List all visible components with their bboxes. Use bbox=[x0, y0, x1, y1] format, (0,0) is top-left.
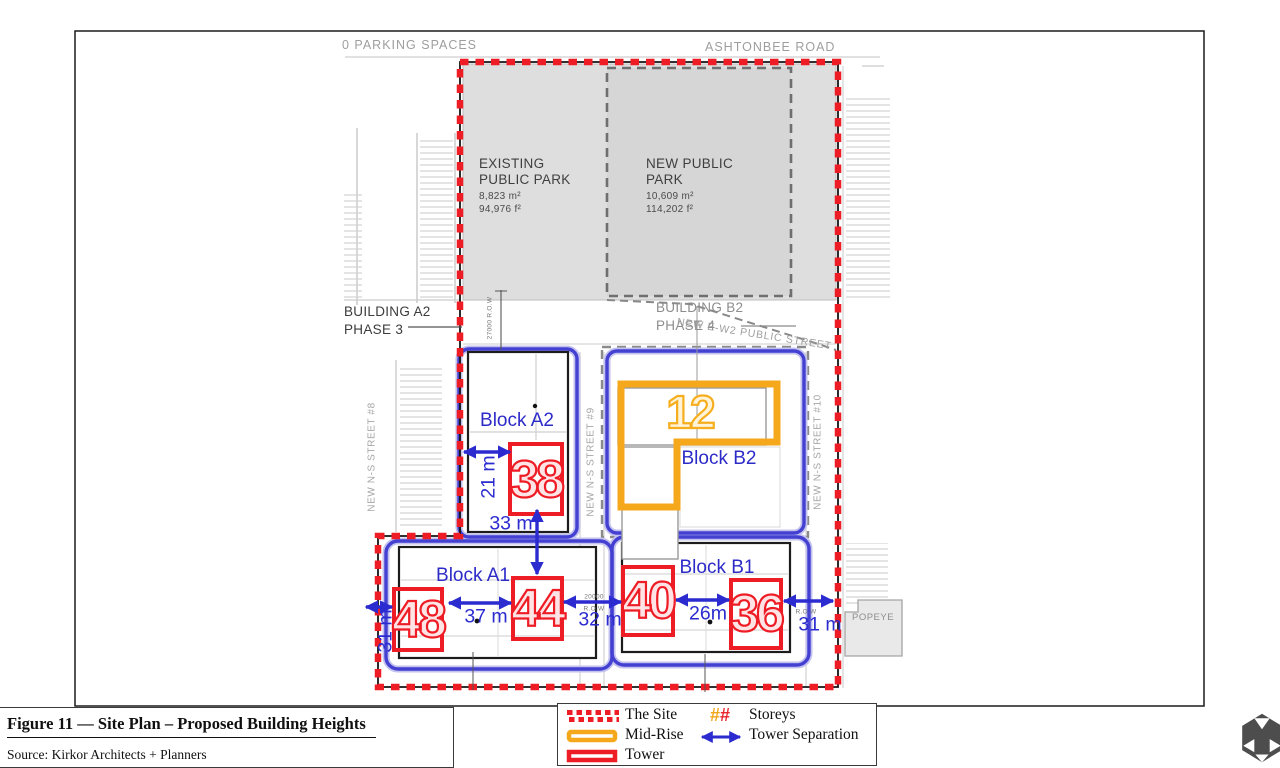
new-park-name-2: PARK bbox=[646, 172, 733, 188]
building-a2-line2: PHASE 3 bbox=[344, 321, 431, 339]
building-a2-label: BUILDING A2 PHASE 3 bbox=[344, 303, 431, 338]
midrise-legend-swatch bbox=[566, 729, 618, 743]
building-b2-line1: BUILDING B2 bbox=[656, 299, 743, 317]
block-b2-label: Block B2 bbox=[682, 448, 757, 470]
block-a2-label: Block A2 bbox=[480, 410, 554, 432]
ashtonbee-road-label: ASHTONBEE ROAD bbox=[705, 40, 835, 54]
tower-44-storeys: 44 bbox=[511, 583, 563, 635]
separation-31m-east: 31 m bbox=[798, 614, 841, 637]
row-20000-label: 20000 bbox=[584, 594, 604, 601]
tower-36-storeys: 36 bbox=[730, 588, 782, 640]
new-park-label: NEW PUBLIC PARK 10,609 m² 114,202 f² bbox=[646, 156, 733, 216]
existing-park-area-m2: 8,823 m² bbox=[479, 190, 571, 203]
tower-38-storeys: 38 bbox=[510, 454, 562, 506]
figure-caption-box: Figure 11 — Site Plan – Proposed Buildin… bbox=[0, 707, 454, 768]
legend-box: The Site ## Storeys Mid-Rise Tower Separ… bbox=[557, 703, 877, 766]
figure-source: Source: Kirkor Architects + Planners bbox=[7, 747, 207, 763]
row-east-label: R.O.W bbox=[796, 609, 817, 616]
storeys-hash-red: # bbox=[720, 705, 730, 725]
row-mid-label: R.O.W bbox=[584, 606, 605, 613]
separation-legend-arrow bbox=[694, 731, 748, 743]
tower-48-storeys: 48 bbox=[392, 594, 444, 646]
separation-37m: 37 m bbox=[464, 606, 507, 629]
legend-midrise-label: Mid-Rise bbox=[625, 726, 684, 744]
existing-park-area-f2: 94,976 f² bbox=[479, 203, 571, 216]
separation-31m-west: 31 m bbox=[375, 609, 398, 652]
building-a2-line1: BUILDING A2 bbox=[344, 303, 431, 321]
tower-legend-swatch bbox=[566, 749, 618, 763]
new-park-area-f2: 114,202 f² bbox=[646, 203, 733, 216]
parking-spaces-label: 0 PARKING SPACES bbox=[342, 38, 477, 52]
site-legend-swatch bbox=[565, 709, 621, 722]
ns-street-9-label: NEW N-S STREET #9 bbox=[586, 407, 597, 516]
separation-33m: 33 m bbox=[489, 513, 532, 536]
new-park-name-1: NEW PUBLIC bbox=[646, 156, 733, 172]
midrise-12-storeys: 12 bbox=[666, 389, 713, 435]
legend-separation-label: Tower Separation bbox=[749, 726, 859, 744]
legend-storeys-label: Storeys bbox=[749, 706, 796, 724]
site-plan-drawing bbox=[0, 0, 1280, 768]
kirkor-logo-icon bbox=[1240, 712, 1280, 764]
separation-26m: 26m bbox=[689, 603, 727, 626]
popeyes-label: POPEYE bbox=[852, 612, 894, 623]
block-b1-label: Block B1 bbox=[680, 557, 755, 579]
separation-21m: 21 m bbox=[478, 455, 501, 498]
tower-40-storeys: 40 bbox=[622, 575, 674, 627]
ns-street-10-label: NEW N-S STREET #10 bbox=[813, 394, 824, 510]
figure-title: Figure 11 — Site Plan – Proposed Buildin… bbox=[7, 714, 376, 738]
new-park-area-m2: 10,609 m² bbox=[646, 190, 733, 203]
legend-site-label: The Site bbox=[625, 706, 677, 724]
b2-footprint-wing bbox=[622, 447, 678, 559]
existing-park-label: EXISTING PUBLIC PARK 8,823 m² 94,976 f² bbox=[479, 156, 571, 216]
existing-park-name-1: EXISTING bbox=[479, 156, 571, 172]
legend-tower-label: Tower bbox=[625, 746, 664, 764]
block-a1-label: Block A1 bbox=[436, 565, 510, 587]
row-27000-label: 27000 R.O.W bbox=[487, 297, 494, 340]
figure-page: 0 PARKING SPACES ASHTONBEE ROAD EXISTING… bbox=[0, 0, 1280, 768]
existing-park-name-2: PUBLIC PARK bbox=[479, 172, 571, 188]
ns-street-8-label: NEW N-S STREET #8 bbox=[367, 402, 378, 511]
storeys-legend-icon: ## bbox=[710, 705, 730, 726]
storeys-hash-orange: # bbox=[710, 705, 720, 725]
